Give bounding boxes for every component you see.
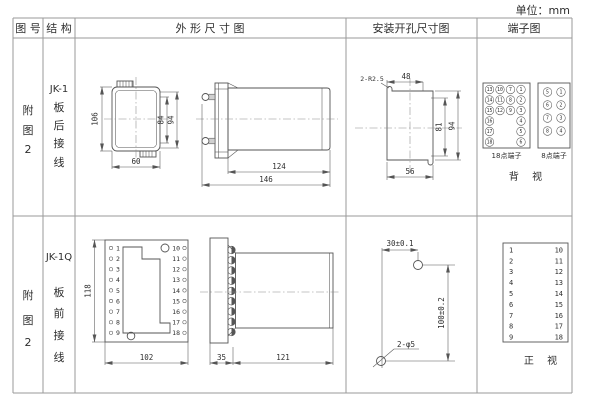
collar-line	[228, 83, 238, 88]
wiring-char: 接	[54, 137, 65, 150]
terminal-fill	[232, 297, 236, 305]
manual-page: 单位：mm 图 号 结 构 外 形 尺 寸 图 安装开孔尺寸图 端子图 附 图 …	[0, 0, 600, 400]
dim-label-60: 60	[131, 157, 141, 166]
wiring-char: 线	[54, 155, 65, 169]
terminal-number: 5	[116, 287, 120, 295]
fig-char: 附	[23, 103, 34, 117]
wiring-char: 板	[54, 285, 65, 299]
terminal-fill	[232, 287, 236, 295]
header-fig-no: 图 号	[15, 22, 41, 35]
terminal-number: 11	[172, 255, 180, 263]
view-label-rear: 背 视	[509, 170, 547, 183]
terminal-hole	[183, 321, 186, 324]
terminal-hole	[183, 257, 186, 260]
terminal-number: 14	[555, 290, 563, 298]
pin-number: 1	[520, 87, 523, 93]
stud-head	[202, 94, 209, 101]
terminal-hole	[109, 289, 112, 292]
wiring-char: 前	[54, 306, 65, 320]
dim-label-121: 121	[276, 353, 290, 362]
terminal-number: 13	[555, 279, 563, 287]
terminal-number: 6	[116, 297, 120, 305]
collar-line	[228, 150, 238, 158]
terminal-hole	[183, 278, 186, 281]
wiring-char: 接	[54, 329, 65, 342]
terminal-hole	[183, 310, 186, 313]
pin-number: 3	[520, 108, 523, 114]
pin-number: 7	[509, 87, 512, 93]
header-outline: 外 形 尺 寸 图	[176, 21, 245, 35]
terminal-number: 12	[555, 268, 563, 276]
drawing-sheet: 单位：mm 图 号 结 构 外 形 尺 寸 图 安装开孔尺寸图 端子图 附 图 …	[0, 0, 600, 400]
terminal-hole	[109, 246, 112, 249]
pin-number: 17	[487, 129, 493, 135]
pin-number: 16	[487, 119, 493, 125]
terminal-hole	[109, 331, 112, 334]
terminal-number: 13	[172, 276, 180, 284]
terminal-number: 2	[116, 255, 120, 263]
pin-number: 15	[487, 108, 493, 114]
view-label-front: 正 视	[524, 354, 562, 367]
dim-label-30: 30±0.1	[386, 239, 413, 248]
panel-step-outline	[123, 247, 170, 333]
jk1-outline-drawing: 106 84 94 60	[91, 77, 339, 187]
front-plate	[210, 238, 228, 343]
dim-label-81: 81	[435, 122, 444, 131]
dim-label-102: 102	[140, 353, 154, 362]
terminal-number: 2	[509, 257, 513, 265]
header-mounting: 安装开孔尺寸图	[373, 21, 450, 35]
terminal-fill	[232, 318, 236, 326]
pin-number: 5	[546, 90, 549, 96]
side-terminals	[228, 246, 236, 336]
fig-char: 2	[25, 336, 32, 349]
terminal-hole	[109, 257, 112, 260]
terminal-number: 18	[172, 329, 180, 337]
terminal-fill	[232, 246, 236, 254]
terminal-number: 7	[509, 312, 513, 320]
radius-label: 2-R2.5	[360, 75, 384, 83]
pin-number: 6	[546, 103, 549, 109]
jk1q-terminal-diagram: 1 2 3 4 5 6 7 8 9 10 11 12 13 14 15 16 1…	[503, 243, 568, 367]
pin-number: 8	[509, 98, 512, 104]
terminal-number: 14	[172, 287, 180, 295]
row2-structure: JK-1Q 板 前 接 线	[45, 252, 72, 364]
header-structure: 结 构	[46, 21, 72, 35]
terminal-table-left: 1 2 3 4 5 6 7 8 9	[509, 246, 513, 341]
terminal-col-10-12: 10 11 12	[496, 85, 505, 115]
pin-number: 8	[546, 129, 549, 135]
pin-number: 2	[520, 98, 523, 104]
unit-label: 单位：mm	[516, 3, 570, 17]
model-name: JK-1Q	[45, 252, 72, 263]
terminal-hole	[183, 246, 186, 249]
terminal-fill	[232, 277, 236, 285]
terminal-fill	[232, 267, 236, 275]
dim-label-124: 124	[272, 162, 286, 171]
wiring-char: 板	[54, 100, 65, 114]
dim-label-48: 48	[401, 72, 411, 81]
pin-number: 5	[520, 129, 523, 135]
terminal-hole	[109, 321, 112, 324]
row1-fig-no: 附 图 2	[23, 103, 34, 156]
terminal-number: 6	[509, 301, 513, 309]
stud-head	[202, 138, 209, 145]
pin-number: 18	[487, 140, 493, 146]
mounting-flange	[215, 83, 228, 158]
terminal-table-right: 10 11 12 13 14 15 16 17 18	[555, 246, 563, 341]
table-header: 图 号 结 构 外 形 尺 寸 图 安装开孔尺寸图 端子图	[15, 21, 540, 35]
jk1q-outline-drawing: 1 2 3 4 5 6 7 8 9 10 11 12 13 14 15 16 1…	[84, 238, 342, 365]
fig-char: 图	[23, 124, 34, 137]
row1-structure: JK-1 板 后 接 线	[49, 84, 68, 169]
table-grid	[13, 18, 572, 393]
terminal-col-5-8: 5 6 7 8	[543, 88, 552, 136]
terminal-col-1-4: 1 2 3 4	[557, 88, 566, 136]
terminal-block-bottom	[140, 151, 156, 157]
terminal-fill	[232, 308, 236, 316]
terminal-stud	[202, 138, 215, 145]
row2-fig-no: 附 图 2	[23, 288, 34, 349]
fig-char: 图	[23, 314, 34, 327]
drill-hole-bottom	[377, 357, 386, 366]
terminal-number: 15	[172, 297, 180, 305]
pin-number: 14	[487, 98, 493, 104]
leader-line	[381, 83, 389, 88]
terminal-number: 4	[116, 276, 120, 284]
dim-label-146: 146	[259, 175, 273, 184]
stud-shaft	[209, 138, 215, 144]
terminal-number: 11	[555, 257, 563, 265]
dim-label-35: 35	[217, 353, 226, 362]
panel-terminals-right: 10 11 12 13 14 15 16 17 18	[172, 244, 186, 337]
terminal-hole	[109, 268, 112, 271]
terminal-hole	[109, 278, 112, 281]
pin-number: 4	[520, 119, 523, 125]
terminal-fill	[232, 256, 236, 264]
dim-label-100: 100±0.2	[437, 297, 446, 329]
relay-body-side	[236, 253, 334, 328]
terminal-number: 8	[116, 319, 120, 327]
drill-hole-top	[414, 261, 423, 270]
terminal-hole	[183, 331, 186, 334]
terminal-number: 3	[509, 268, 513, 276]
mounting-hole-top	[161, 244, 169, 252]
panel-terminals-left: 1 2 3 4 5 6 7 8 9	[109, 244, 120, 337]
terminal-number: 5	[509, 290, 513, 298]
terminal-hole	[183, 289, 186, 292]
wiring-char: 后	[54, 119, 65, 132]
terminal-number: 3	[116, 266, 120, 274]
terminal-hole	[109, 310, 112, 313]
pin-number: 3	[560, 116, 563, 122]
terminal-hole	[109, 299, 112, 302]
header-terminal: 端子图	[508, 22, 541, 35]
terminal-number: 16	[172, 308, 180, 316]
terminal-col-7-9: 7 8 9	[506, 85, 515, 115]
terminal-number: 17	[172, 319, 180, 327]
model-name: JK-1	[49, 84, 68, 95]
dim-label-118: 118	[84, 284, 93, 298]
jk1-mounting-drawing: 48 2-R2.5 81 94 56	[355, 72, 462, 180]
terminal-18-label: 18点端子	[492, 151, 522, 160]
jk1q-mounting-drawing: 30±0.1 100±0.2 2-φ5	[373, 239, 455, 368]
pin-number: 7	[546, 116, 549, 122]
terminal-number: 1	[116, 244, 120, 252]
dim-label-94: 94	[448, 121, 457, 131]
pin-number: 11	[497, 98, 503, 104]
terminal-number: 4	[509, 279, 513, 287]
pin-number: 13	[487, 87, 493, 93]
pin-number: 1	[560, 90, 563, 96]
wiring-char: 线	[54, 350, 65, 364]
terminal-number: 8	[509, 323, 513, 331]
dim-label-84: 84	[157, 115, 166, 125]
pin-number: 12	[497, 108, 503, 114]
terminal-number: 10	[555, 246, 563, 254]
fig-char: 附	[23, 288, 34, 302]
terminal-number: 12	[172, 266, 180, 274]
terminal-number: 9	[509, 334, 513, 342]
terminal-hole	[183, 268, 186, 271]
pin-number: 9	[509, 108, 512, 114]
terminal-number: 1	[509, 246, 513, 254]
terminal-hole	[183, 299, 186, 302]
terminal-number: 15	[555, 301, 563, 309]
terminal-8-label: 8点端子	[541, 151, 566, 160]
terminal-number: 16	[555, 312, 563, 320]
dim-label-106: 106	[91, 112, 100, 126]
terminal-number: 9	[116, 329, 120, 337]
terminal-col-13-18: 13 14 15 16 17 18	[485, 85, 494, 146]
terminal-stud	[202, 94, 215, 101]
dim-label-94: 94	[167, 115, 176, 125]
hole-spec-label: 2-φ5	[397, 340, 415, 349]
terminal-col-1-6: 1 2 3 4 5 6	[517, 85, 526, 146]
stud-shaft	[209, 94, 215, 100]
terminal-block-top	[117, 81, 133, 87]
terminal-number: 17	[555, 323, 563, 331]
pin-number: 6	[520, 140, 523, 146]
terminal-number: 18	[555, 334, 563, 342]
terminal-number: 10	[172, 244, 180, 252]
dim-label-56: 56	[405, 167, 415, 176]
pin-number: 2	[560, 103, 563, 109]
jk1-terminal-diagram: 13 14 15 16 17 18 10 11 12 7 8 9 1 2 3 4…	[483, 83, 570, 183]
pin-number: 10	[497, 87, 503, 93]
pin-number: 4	[560, 129, 563, 135]
terminal-number: 7	[116, 308, 120, 316]
fig-char: 2	[25, 143, 32, 156]
